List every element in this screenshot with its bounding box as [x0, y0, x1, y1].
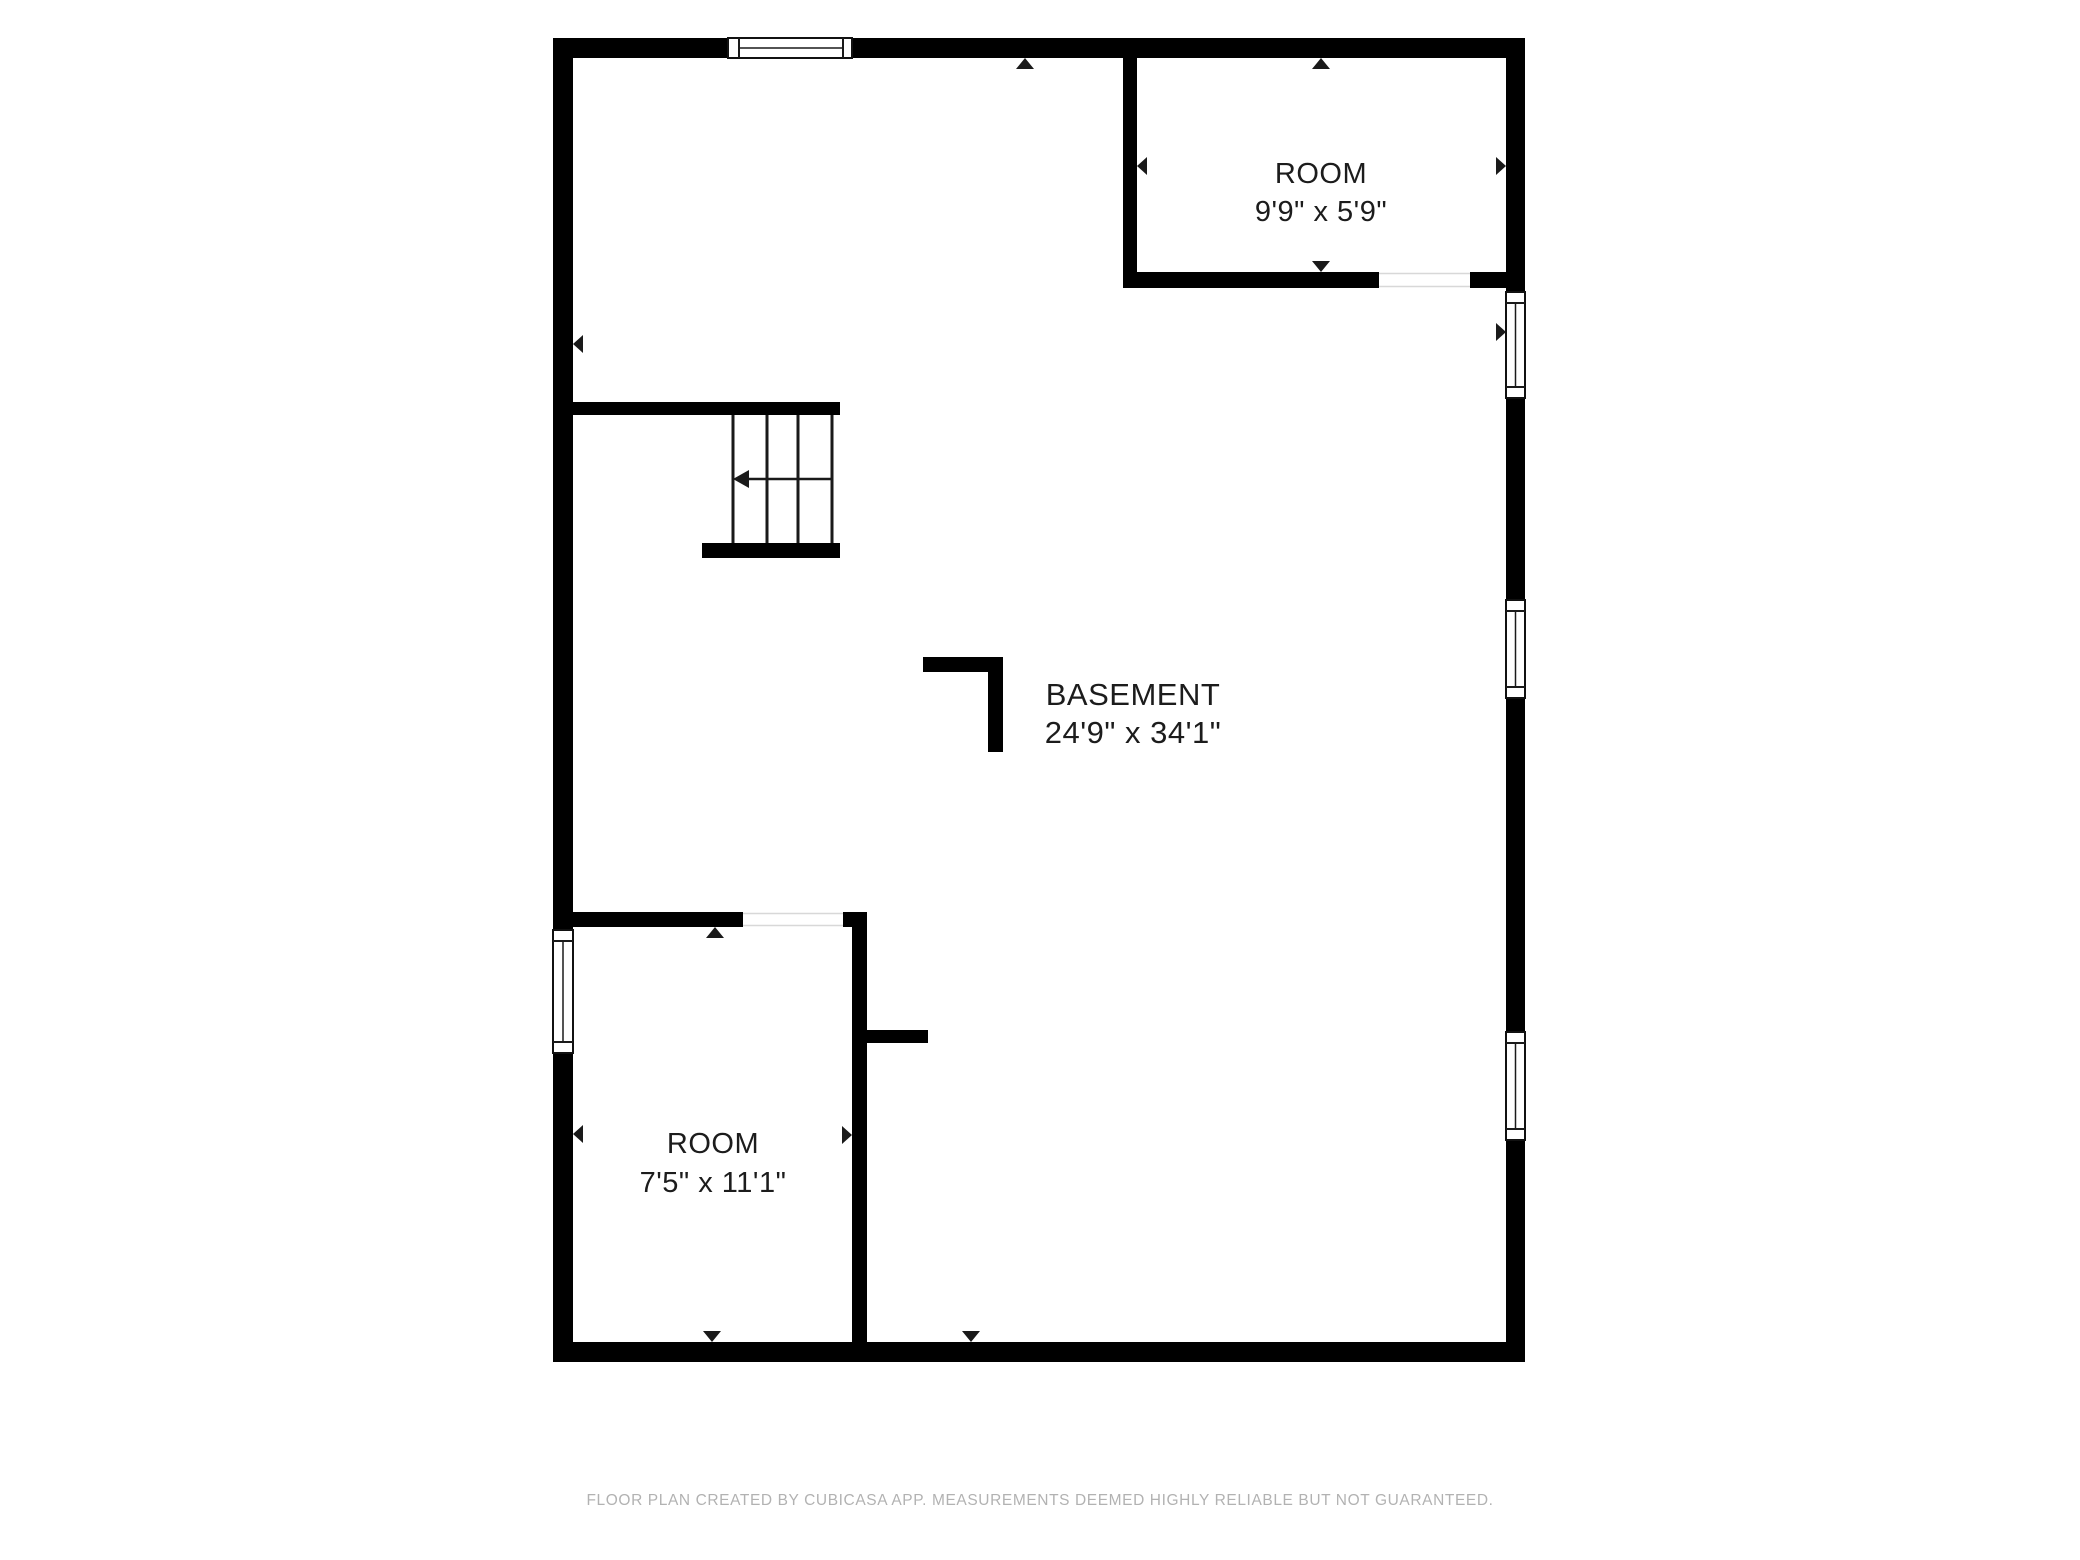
room-label: ROOM	[667, 1128, 759, 1160]
floor-plan-page: ROOM9'9" x 5'9"BASEMENT24'9" x 34'1"ROOM…	[0, 0, 2080, 1560]
wall-marker-arrow-up	[706, 927, 724, 938]
room-dimensions: 24'9" x 34'1"	[1045, 715, 1222, 750]
wall-right-segment-3	[1506, 698, 1525, 1032]
wall-marker-arrow-down	[703, 1331, 721, 1342]
wall-room1-top-corner	[843, 912, 867, 927]
stair-direction-arrow	[733, 470, 749, 488]
stair-base-wall	[702, 543, 840, 558]
wall-marker-arrow-left	[573, 335, 583, 353]
wall-bottom	[553, 1342, 1525, 1362]
wall-marker-arrow-left	[1137, 157, 1147, 175]
wall-marker-arrow-right	[842, 1126, 852, 1144]
wall-marker-arrow-down	[962, 1331, 980, 1342]
wall-marker-arrow-left	[573, 1125, 583, 1143]
wall-marker-arrow-right	[1496, 157, 1506, 175]
room-dimensions: 7'5" x 11'1"	[640, 1167, 787, 1199]
wall-right-segment-1	[1506, 58, 1525, 292]
room-label: BASEMENT	[1046, 677, 1221, 712]
wall-room2-bottom-left-segment	[1123, 272, 1379, 288]
corner-marker-vertical	[988, 657, 1003, 752]
wall-top-right-segment	[852, 38, 1525, 58]
wall-right-segment-2	[1506, 398, 1525, 600]
wall-top-left-segment	[553, 38, 728, 58]
wall-left-lower-segment	[553, 1053, 573, 1362]
doorway-opening	[1379, 272, 1470, 288]
wall-stair-header	[573, 402, 840, 415]
wall-right-segment-4	[1506, 1140, 1525, 1362]
wall-room1-top	[573, 912, 743, 927]
wall-left-upper-segment	[553, 58, 573, 930]
wall-room1-right	[852, 927, 867, 1342]
wall-marker-arrow-up	[1312, 58, 1330, 69]
room-dimensions: 9'9" x 5'9"	[1255, 196, 1387, 228]
wall-marker-arrow-right	[1496, 323, 1506, 341]
wall-marker-arrow-up	[1016, 58, 1034, 69]
wall-room2-left	[1123, 57, 1137, 272]
floor-plan: ROOM9'9" x 5'9"BASEMENT24'9" x 34'1"ROOM…	[0, 0, 2080, 1560]
room-label: ROOM	[1275, 158, 1367, 190]
wall-marker-arrow-down	[1312, 261, 1330, 272]
wall-room2-bottom-right-segment	[1470, 272, 1506, 288]
wall-stub	[867, 1030, 928, 1043]
footer-disclaimer: FLOOR PLAN CREATED BY CUBICASA APP. MEAS…	[0, 1492, 2080, 1510]
